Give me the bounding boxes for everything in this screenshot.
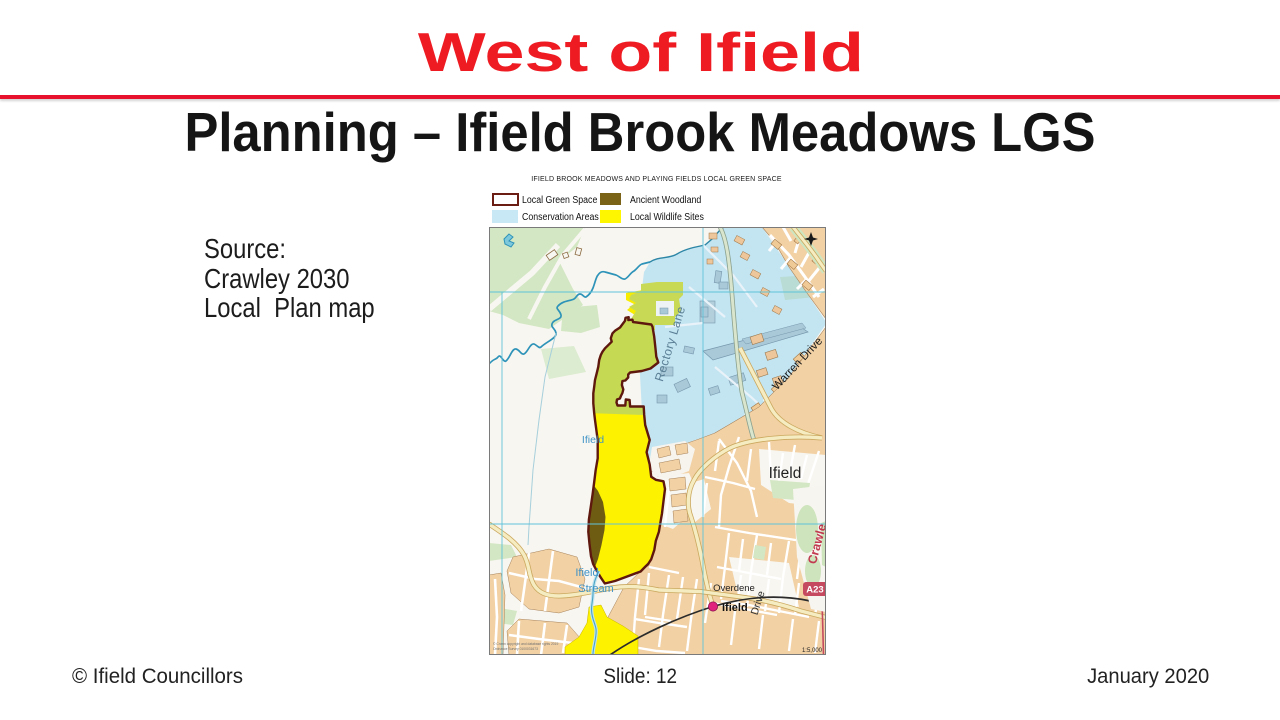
svg-text:Ordnance Survey 0100031673: Ordnance Survey 0100031673 <box>493 647 538 651</box>
svg-text:Ifield: Ifield <box>575 567 598 579</box>
svg-text:© Crown copyright and database: © Crown copyright and database rights 20… <box>493 642 558 646</box>
svg-text:Ifield: Ifield <box>582 434 604 446</box>
svg-text:Ifield: Ifield <box>769 465 802 482</box>
svg-text:Overdene: Overdene <box>713 583 755 594</box>
svg-text:1:5,000: 1:5,000 <box>802 648 823 654</box>
svg-text:A23: A23 <box>806 585 823 596</box>
svg-text:Stream: Stream <box>578 583 613 595</box>
svg-text:Ifield: Ifield <box>722 602 748 614</box>
